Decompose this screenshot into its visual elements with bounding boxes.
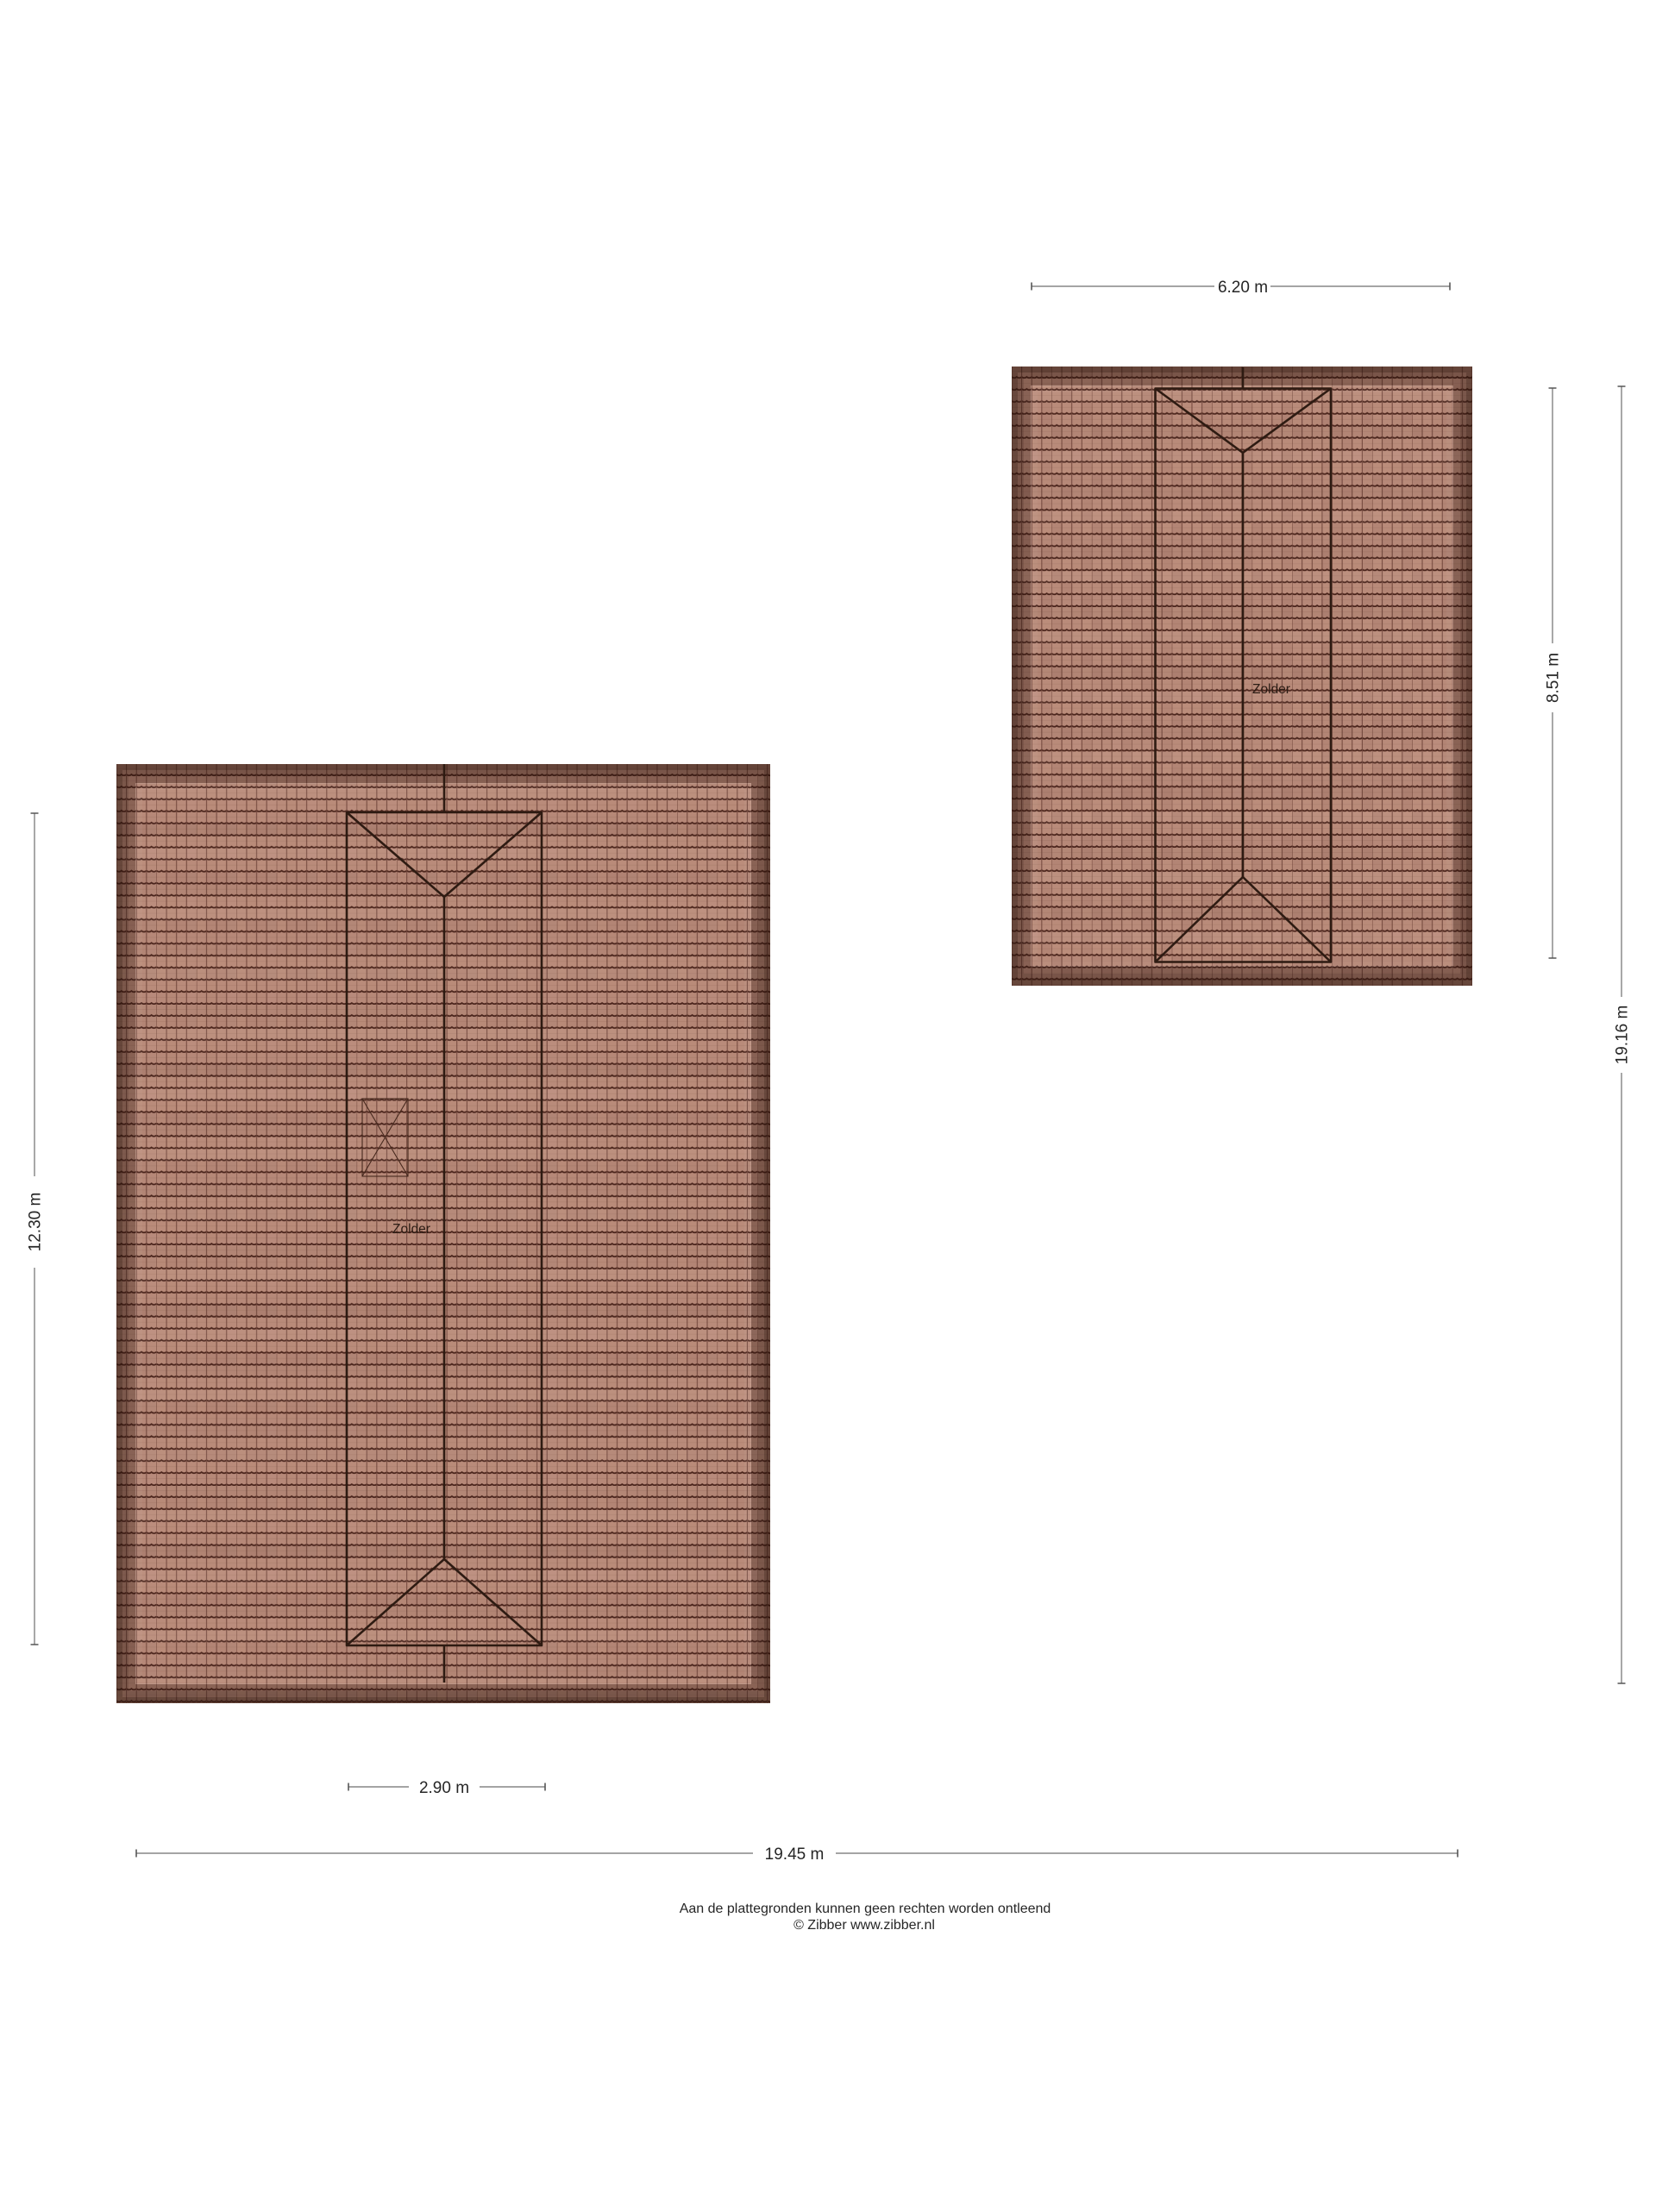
svg-text:Aan de plattegronden kunnen ge: Aan de plattegronden kunnen geen rechten… [680,1902,1051,1916]
svg-text:8.51 m: 8.51 m [1545,653,1563,703]
svg-text:Zolder: Zolder [392,1222,430,1237]
svg-text:12.30 m: 12.30 m [27,1193,45,1252]
svg-text:Zolder: Zolder [1252,682,1290,697]
svg-text:19.45 m: 19.45 m [765,1845,825,1864]
svg-text:6.20 m: 6.20 m [1218,279,1268,297]
svg-text:2.90 m: 2.90 m [419,1779,469,1797]
svg-text:19.16 m: 19.16 m [1614,1006,1632,1065]
svg-text:© Zibber www.zibber.nl: © Zibber www.zibber.nl [793,1918,935,1933]
